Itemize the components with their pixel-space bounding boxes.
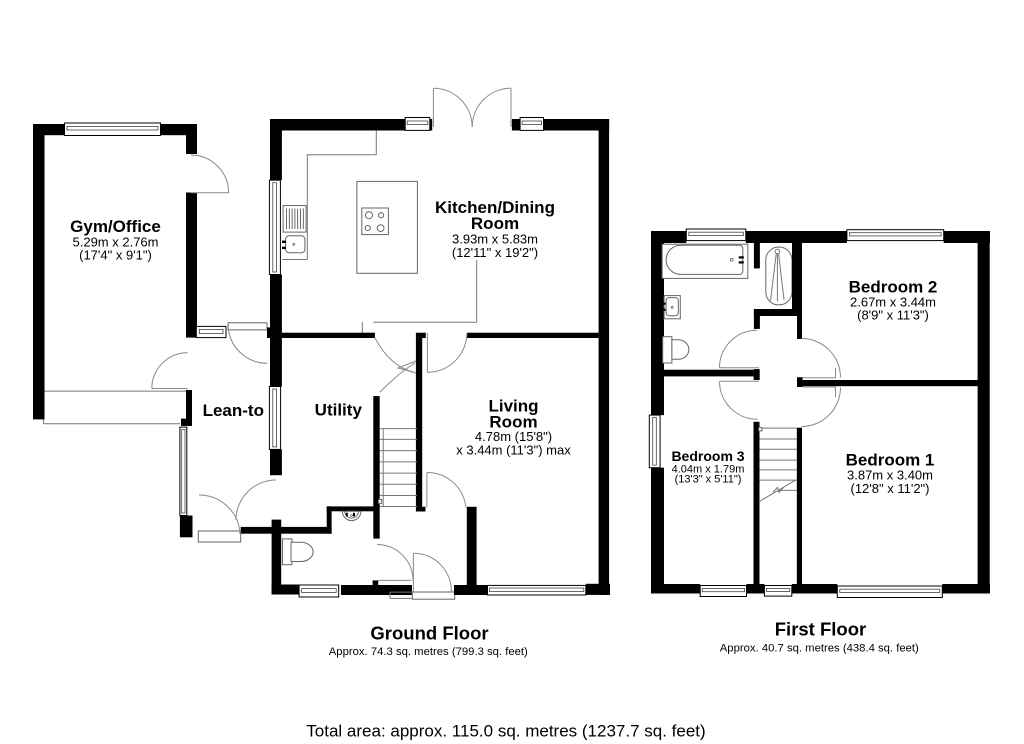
svg-text:Approx. 40.7 sq. metres (438.4: Approx. 40.7 sq. metres (438.4 sq. feet)	[720, 643, 919, 655]
svg-text:Bedroom 3: Bedroom 3	[671, 448, 744, 464]
svg-text:(17'4" x 9'1"): (17'4" x 9'1")	[79, 248, 152, 263]
svg-text:(12'11" x 19'2"): (12'11" x 19'2")	[452, 245, 538, 260]
svg-text:Approx. 74.3 sq. metres (799.3: Approx. 74.3 sq. metres (799.3 sq. feet)	[329, 646, 528, 658]
svg-text:(8'9" x 11'3"): (8'9" x 11'3")	[857, 308, 929, 323]
svg-text:(13'3" x 5'11"): (13'3" x 5'11")	[675, 474, 742, 486]
svg-text:First Floor: First Floor	[775, 619, 866, 640]
svg-text:x 3.44m (11'3") max: x 3.44m (11'3") max	[456, 443, 571, 458]
svg-text:(12'8" x 11'2"): (12'8" x 11'2")	[851, 481, 930, 496]
svg-text:Utility: Utility	[315, 401, 363, 420]
svg-text:Ground Floor: Ground Floor	[370, 623, 488, 644]
svg-text:Room: Room	[471, 214, 519, 233]
svg-text:Gym/Office: Gym/Office	[70, 217, 161, 236]
svg-text:Total area: approx. 115.0 sq.: Total area: approx. 115.0 sq. metres (12…	[306, 722, 705, 741]
svg-text:Lean-to: Lean-to	[203, 401, 264, 420]
